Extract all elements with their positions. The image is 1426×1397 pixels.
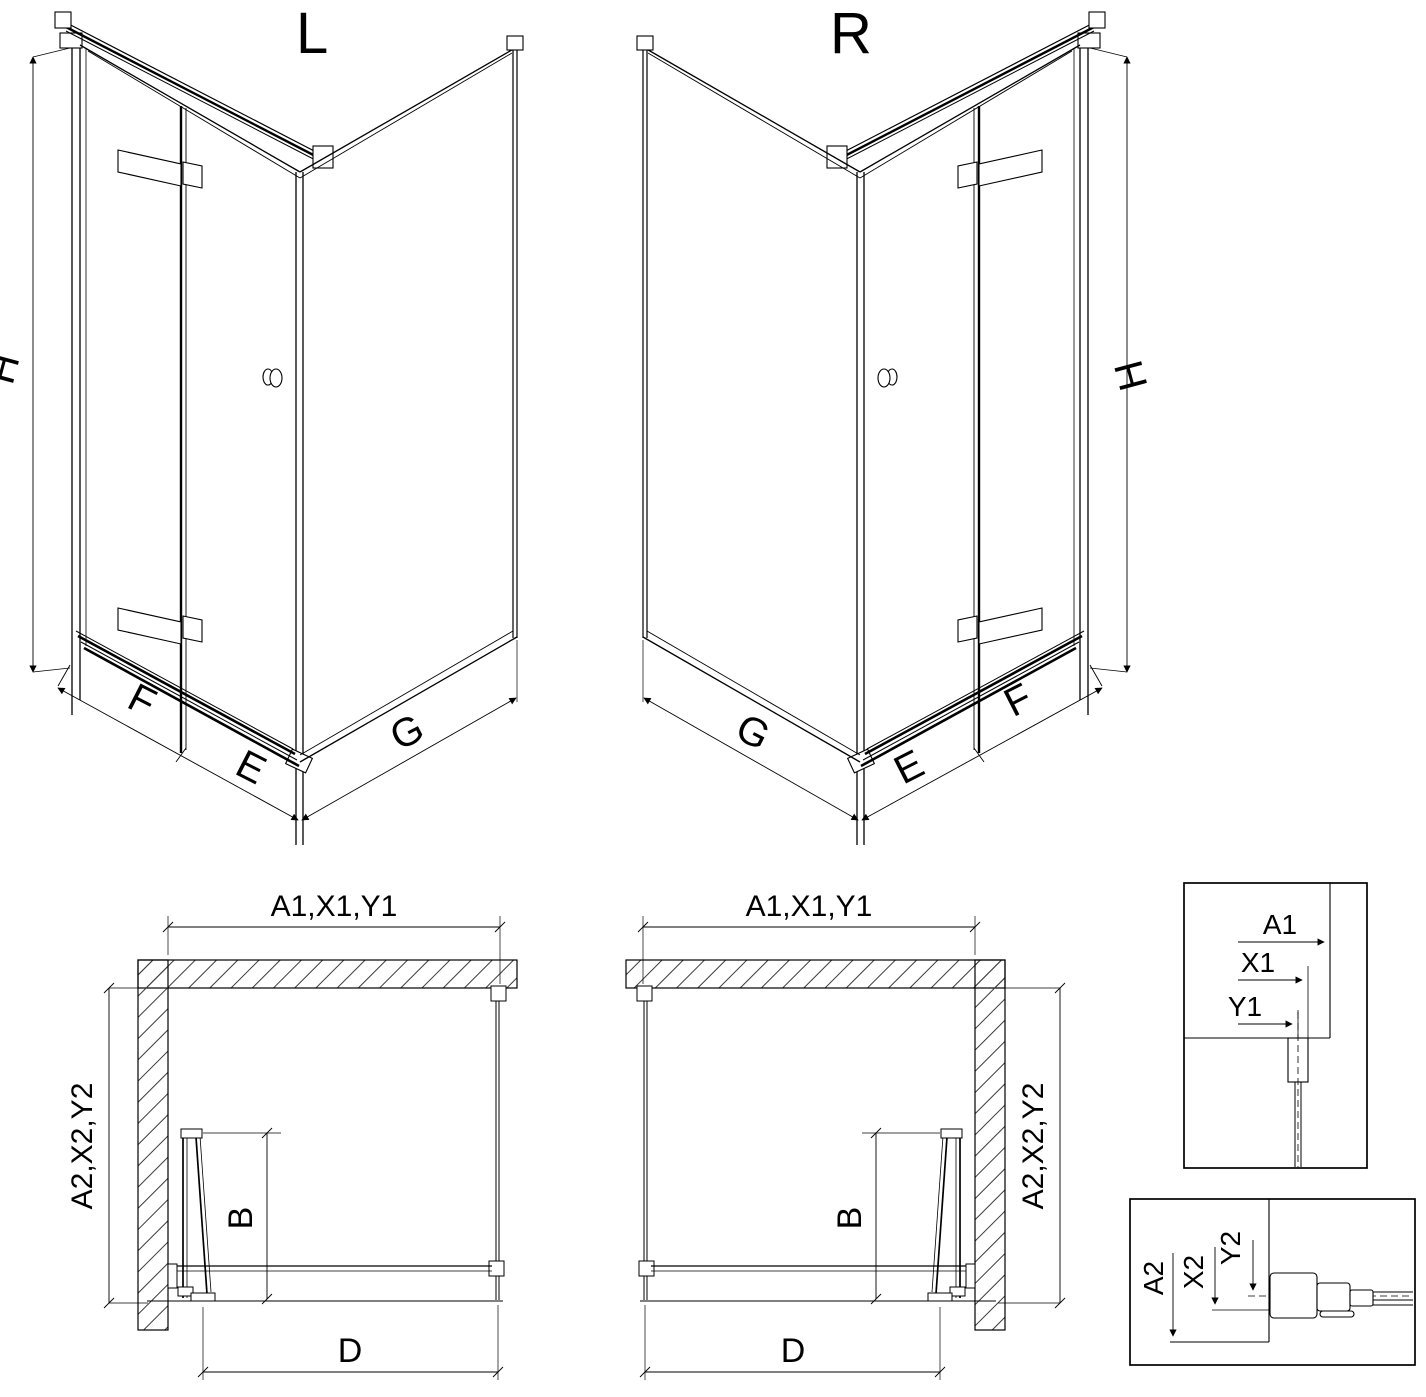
plan-right-view: A1,X1,Y1 A2,X2,Y2 B D bbox=[626, 890, 1065, 1380]
detail-x2-label: X2 bbox=[1178, 1255, 1209, 1289]
iso-left-dim-height bbox=[33, 46, 78, 672]
plan-right-door-label: B bbox=[831, 1207, 869, 1230]
label-H-left: H bbox=[0, 349, 28, 388]
detail-depth-view: A2 X2 Y2 bbox=[1130, 1199, 1415, 1365]
top-fitting bbox=[637, 986, 652, 1001]
plan-right-width-label: A1,X1,Y1 bbox=[746, 890, 873, 923]
plan-right-entry-label: D bbox=[781, 1332, 806, 1370]
plan-left-depth-label: A2,X2,Y2 bbox=[66, 1083, 99, 1210]
detail-a2-label: A2 bbox=[1138, 1261, 1169, 1295]
detail-width-view: A1 X1 Y1 bbox=[1184, 883, 1367, 1168]
label-G-right: G bbox=[729, 706, 777, 759]
detail-y1-label: Y1 bbox=[1228, 991, 1262, 1022]
door-knob bbox=[263, 369, 282, 387]
plan-left-door-label: B bbox=[222, 1207, 260, 1230]
fold-hinge-top bbox=[958, 150, 1042, 188]
wall-left bbox=[138, 960, 168, 1330]
label-F-left: F bbox=[121, 675, 163, 725]
wall-profile-cap bbox=[1078, 33, 1100, 48]
folded-door bbox=[168, 1129, 215, 1301]
iso-left-view: L H F E G bbox=[0, 1, 523, 845]
variant-label-right: R bbox=[830, 1, 872, 66]
side-panel-cap bbox=[637, 36, 653, 50]
label-G-left: G bbox=[383, 706, 431, 759]
detail-a1-label: A1 bbox=[1263, 909, 1297, 940]
wall-top bbox=[626, 960, 1005, 988]
fold-hinge-top bbox=[118, 150, 202, 188]
label-F-right: F bbox=[997, 675, 1039, 725]
plan-left-width-label: A1,X1,Y1 bbox=[271, 890, 398, 923]
iso-right-dim-FE bbox=[862, 665, 1102, 820]
plan-right-depth-label: A2,X2,Y2 bbox=[1017, 1083, 1050, 1210]
plan-left-entry-label: D bbox=[338, 1332, 363, 1370]
wall-top bbox=[138, 960, 517, 988]
fold-hinge-bottom bbox=[958, 608, 1042, 644]
top-fitting bbox=[491, 986, 506, 1001]
variant-label-left: L bbox=[296, 1, 328, 66]
corner-fitting bbox=[639, 1261, 654, 1276]
wall-right bbox=[975, 960, 1005, 1330]
shower-enclosure-technical-drawing: L H F E G bbox=[0, 0, 1426, 1397]
drawing-canvas: L H F E G bbox=[0, 0, 1426, 1397]
corner-fitting bbox=[489, 1261, 504, 1276]
detail-y2-label: Y2 bbox=[1215, 1231, 1246, 1265]
iso-left-dim-FE bbox=[58, 665, 298, 820]
plan-right-dim-door bbox=[862, 1128, 940, 1304]
wall-profile-side-section bbox=[1270, 1273, 1373, 1318]
folded-door bbox=[928, 1129, 975, 1301]
support-bar bbox=[55, 12, 333, 168]
plan-left-view: A1,X1,Y1 A2,X2,Y2 B D bbox=[66, 890, 517, 1380]
bottom-rail bbox=[861, 631, 1084, 766]
fold-hinge-bottom bbox=[118, 608, 202, 644]
label-H-right: H bbox=[1106, 356, 1156, 395]
bottom-rail bbox=[76, 631, 299, 766]
iso-right-dim-height bbox=[1082, 46, 1127, 672]
door-knob bbox=[878, 369, 897, 387]
wall-profile-cap bbox=[60, 33, 82, 48]
iso-right-view: R H F E G bbox=[637, 1, 1156, 845]
side-panel-cap bbox=[507, 36, 523, 50]
detail-x1-label: X1 bbox=[1241, 947, 1275, 978]
